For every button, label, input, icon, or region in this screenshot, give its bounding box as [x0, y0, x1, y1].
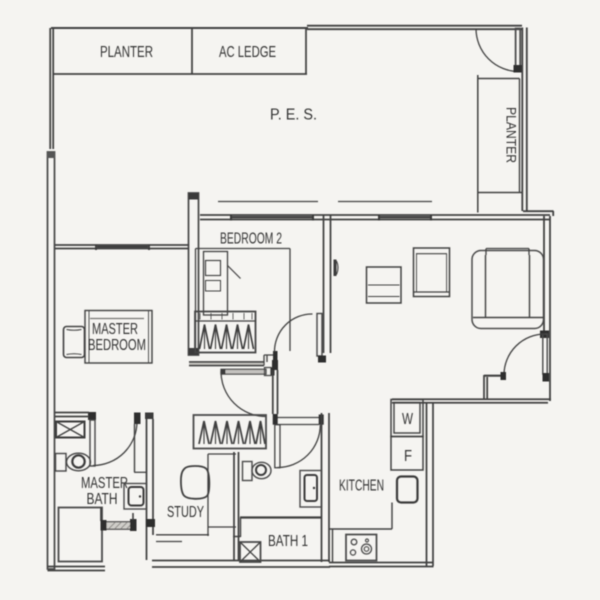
- svg-text:MASTER: MASTER: [81, 475, 128, 492]
- svg-text:AC LEDGE: AC LEDGE: [219, 44, 276, 61]
- svg-text:BEDROOM 2: BEDROOM 2: [220, 231, 282, 248]
- svg-text:MASTER: MASTER: [92, 321, 138, 338]
- svg-text:F: F: [404, 448, 412, 465]
- svg-text:PLANTER: PLANTER: [100, 44, 153, 61]
- svg-text:W: W: [402, 411, 414, 428]
- svg-text:P. E. S.: P. E. S.: [270, 107, 317, 124]
- svg-text:PLANTER: PLANTER: [504, 107, 520, 163]
- svg-text:BEDROOM: BEDROOM: [88, 337, 146, 354]
- svg-text:KITCHEN: KITCHEN: [339, 478, 384, 495]
- svg-text:BATH: BATH: [87, 491, 118, 508]
- svg-text:BATH 1: BATH 1: [268, 533, 308, 550]
- svg-text:STUDY: STUDY: [167, 504, 204, 521]
